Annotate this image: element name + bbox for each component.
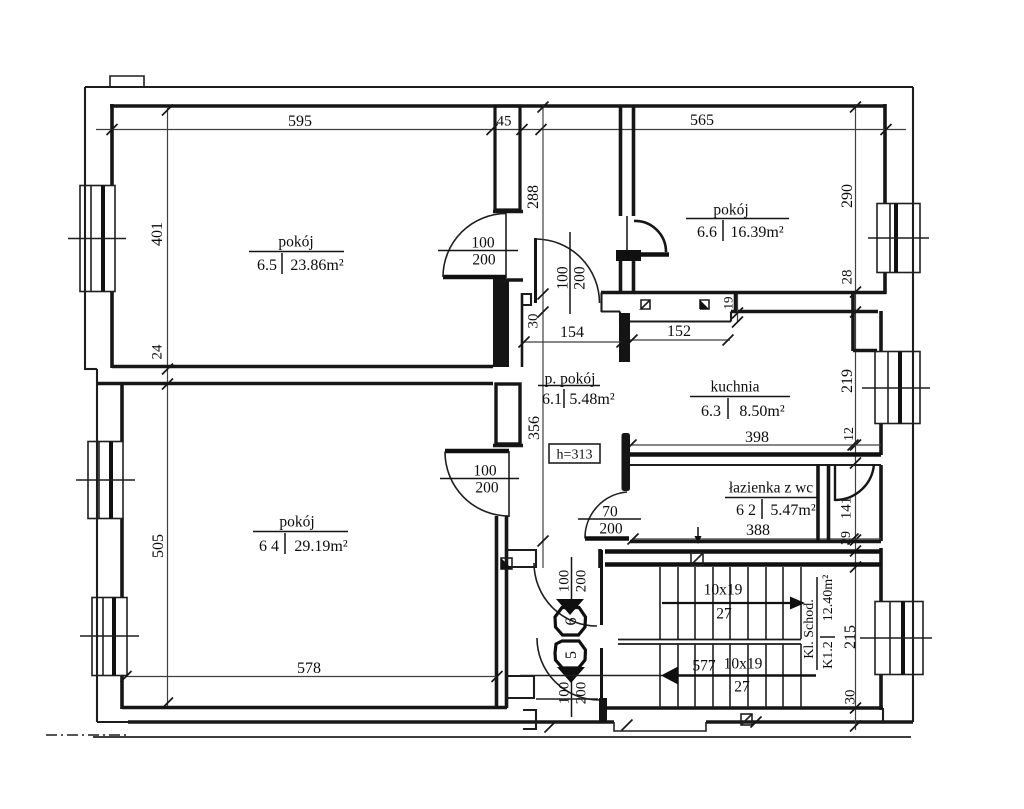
- svg-text:27: 27: [716, 606, 732, 623]
- svg-text:28: 28: [839, 270, 855, 285]
- svg-text:10x19: 10x19: [724, 656, 763, 673]
- svg-text:595: 595: [288, 113, 312, 130]
- svg-text:200: 200: [572, 266, 589, 290]
- svg-text:pokój: pokój: [278, 234, 313, 251]
- svg-text:219: 219: [839, 369, 856, 393]
- svg-text:70: 70: [602, 504, 618, 521]
- svg-text:577: 577: [692, 658, 716, 675]
- svg-text:290: 290: [839, 184, 856, 208]
- svg-text:100: 100: [556, 682, 572, 705]
- svg-text:100: 100: [555, 266, 572, 290]
- svg-text:29.19m²: 29.19m²: [294, 538, 347, 555]
- svg-text:100: 100: [471, 235, 495, 252]
- svg-text:24: 24: [149, 344, 165, 360]
- svg-text:10x19: 10x19: [704, 582, 743, 599]
- svg-text:5.48m²: 5.48m²: [569, 391, 614, 408]
- svg-text:200: 200: [472, 252, 496, 269]
- svg-text:100: 100: [473, 463, 497, 480]
- svg-text:Kl. Schod.: Kl. Schod.: [802, 599, 817, 659]
- svg-text:5: 5: [563, 651, 580, 659]
- svg-text:401: 401: [149, 222, 166, 246]
- svg-text:łazienka z wc: łazienka z wc: [729, 480, 813, 497]
- svg-text:100: 100: [556, 570, 572, 593]
- svg-text:12.40m²: 12.40m²: [821, 575, 836, 622]
- svg-text:200: 200: [599, 521, 623, 538]
- svg-text:356: 356: [526, 416, 543, 440]
- svg-text:23.86m²: 23.86m²: [290, 257, 343, 274]
- svg-text:27: 27: [734, 679, 750, 696]
- svg-text:578: 578: [297, 660, 321, 677]
- svg-text:6: 6: [563, 618, 580, 626]
- svg-text:200: 200: [573, 570, 589, 593]
- svg-text:19: 19: [721, 297, 736, 310]
- svg-text:215: 215: [842, 625, 859, 649]
- svg-text:200: 200: [475, 480, 499, 497]
- svg-text:398: 398: [745, 429, 769, 446]
- svg-text:K1.2: K1.2: [821, 641, 836, 669]
- svg-text:6 4: 6 4: [259, 538, 279, 555]
- svg-text:8.50m²: 8.50m²: [739, 403, 784, 420]
- svg-text:h=313: h=313: [557, 448, 593, 463]
- svg-text:200: 200: [573, 682, 589, 705]
- svg-text:154: 154: [560, 324, 584, 341]
- svg-text:kuchnia: kuchnia: [710, 379, 759, 396]
- svg-text:565: 565: [690, 112, 714, 129]
- svg-text:45: 45: [497, 113, 512, 129]
- svg-text:5.47m²: 5.47m²: [770, 502, 815, 519]
- svg-text:6.5: 6.5: [257, 257, 277, 274]
- svg-text:30: 30: [842, 690, 858, 705]
- svg-text:pokój: pokój: [713, 202, 748, 219]
- svg-text:288: 288: [525, 185, 542, 209]
- svg-text:12: 12: [842, 427, 857, 441]
- svg-text:6.6: 6.6: [697, 224, 717, 241]
- svg-text:6.3: 6.3: [701, 403, 721, 420]
- svg-text:pokój: pokój: [279, 514, 314, 531]
- svg-text:152: 152: [667, 323, 691, 340]
- svg-text:30: 30: [525, 314, 541, 329]
- svg-text:6 2: 6 2: [736, 502, 756, 519]
- svg-text:16.39m²: 16.39m²: [730, 224, 783, 241]
- svg-text:505: 505: [150, 534, 167, 558]
- svg-text:6.1: 6.1: [542, 391, 562, 408]
- svg-text:388: 388: [746, 522, 770, 539]
